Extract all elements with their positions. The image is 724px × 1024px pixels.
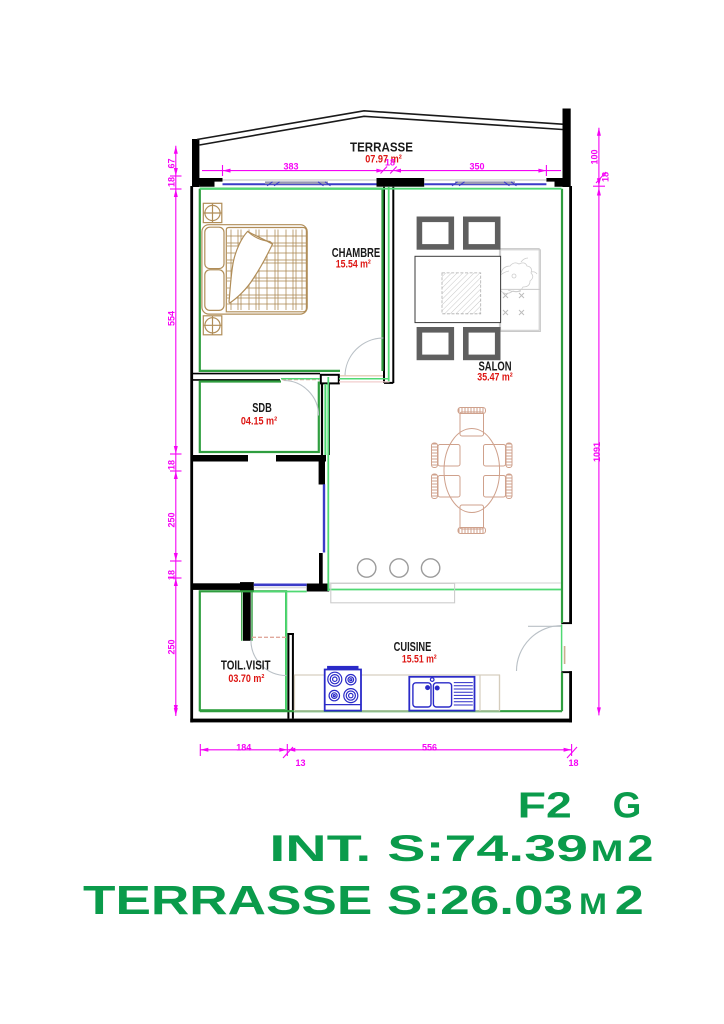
svg-text:556: 556 [422, 743, 437, 753]
svg-text:G: G [613, 784, 642, 825]
svg-text:18: 18 [385, 157, 395, 167]
svg-text:13: 13 [295, 758, 305, 768]
svg-text:TOIL.VISIT: TOIL.VISIT [221, 658, 271, 673]
svg-text:250: 250 [166, 512, 176, 527]
svg-text:F2: F2 [518, 784, 572, 825]
svg-text:07.97 m²: 07.97 m² [365, 154, 402, 166]
svg-text:CUISINE: CUISINE [394, 639, 432, 654]
svg-text:18: 18 [568, 758, 578, 768]
svg-text:1091: 1091 [592, 442, 602, 462]
svg-text:15.54 m²: 15.54 m² [336, 259, 371, 271]
svg-text:M: M [591, 835, 624, 868]
svg-text:2: 2 [615, 877, 644, 923]
svg-text:M: M [579, 888, 607, 921]
svg-text:TERRASSE: TERRASSE [350, 139, 413, 154]
svg-text:15.51 m²: 15.51 m² [402, 653, 437, 665]
svg-text:2: 2 [627, 827, 653, 869]
svg-text:100: 100 [590, 149, 600, 164]
svg-text:554: 554 [166, 311, 176, 326]
svg-text:383: 383 [283, 161, 298, 171]
svg-text:TERRASSE S:26.03: TERRASSE S:26.03 [83, 877, 573, 923]
svg-text:18: 18 [166, 460, 176, 470]
svg-text:18: 18 [601, 172, 611, 182]
svg-text:250: 250 [166, 639, 176, 654]
svg-text:03.70 m²: 03.70 m² [228, 673, 264, 685]
svg-text:04.15 m²: 04.15 m² [241, 416, 277, 428]
svg-text:35.47 m²: 35.47 m² [477, 372, 513, 384]
svg-text:18: 18 [166, 177, 176, 187]
svg-text:184: 184 [236, 743, 251, 753]
svg-text:18: 18 [166, 570, 176, 580]
svg-text:INT. S:74.39: INT. S:74.39 [269, 827, 588, 869]
svg-text:350: 350 [469, 161, 484, 171]
svg-text:67: 67 [166, 158, 176, 168]
svg-text:SDB: SDB [252, 400, 272, 415]
